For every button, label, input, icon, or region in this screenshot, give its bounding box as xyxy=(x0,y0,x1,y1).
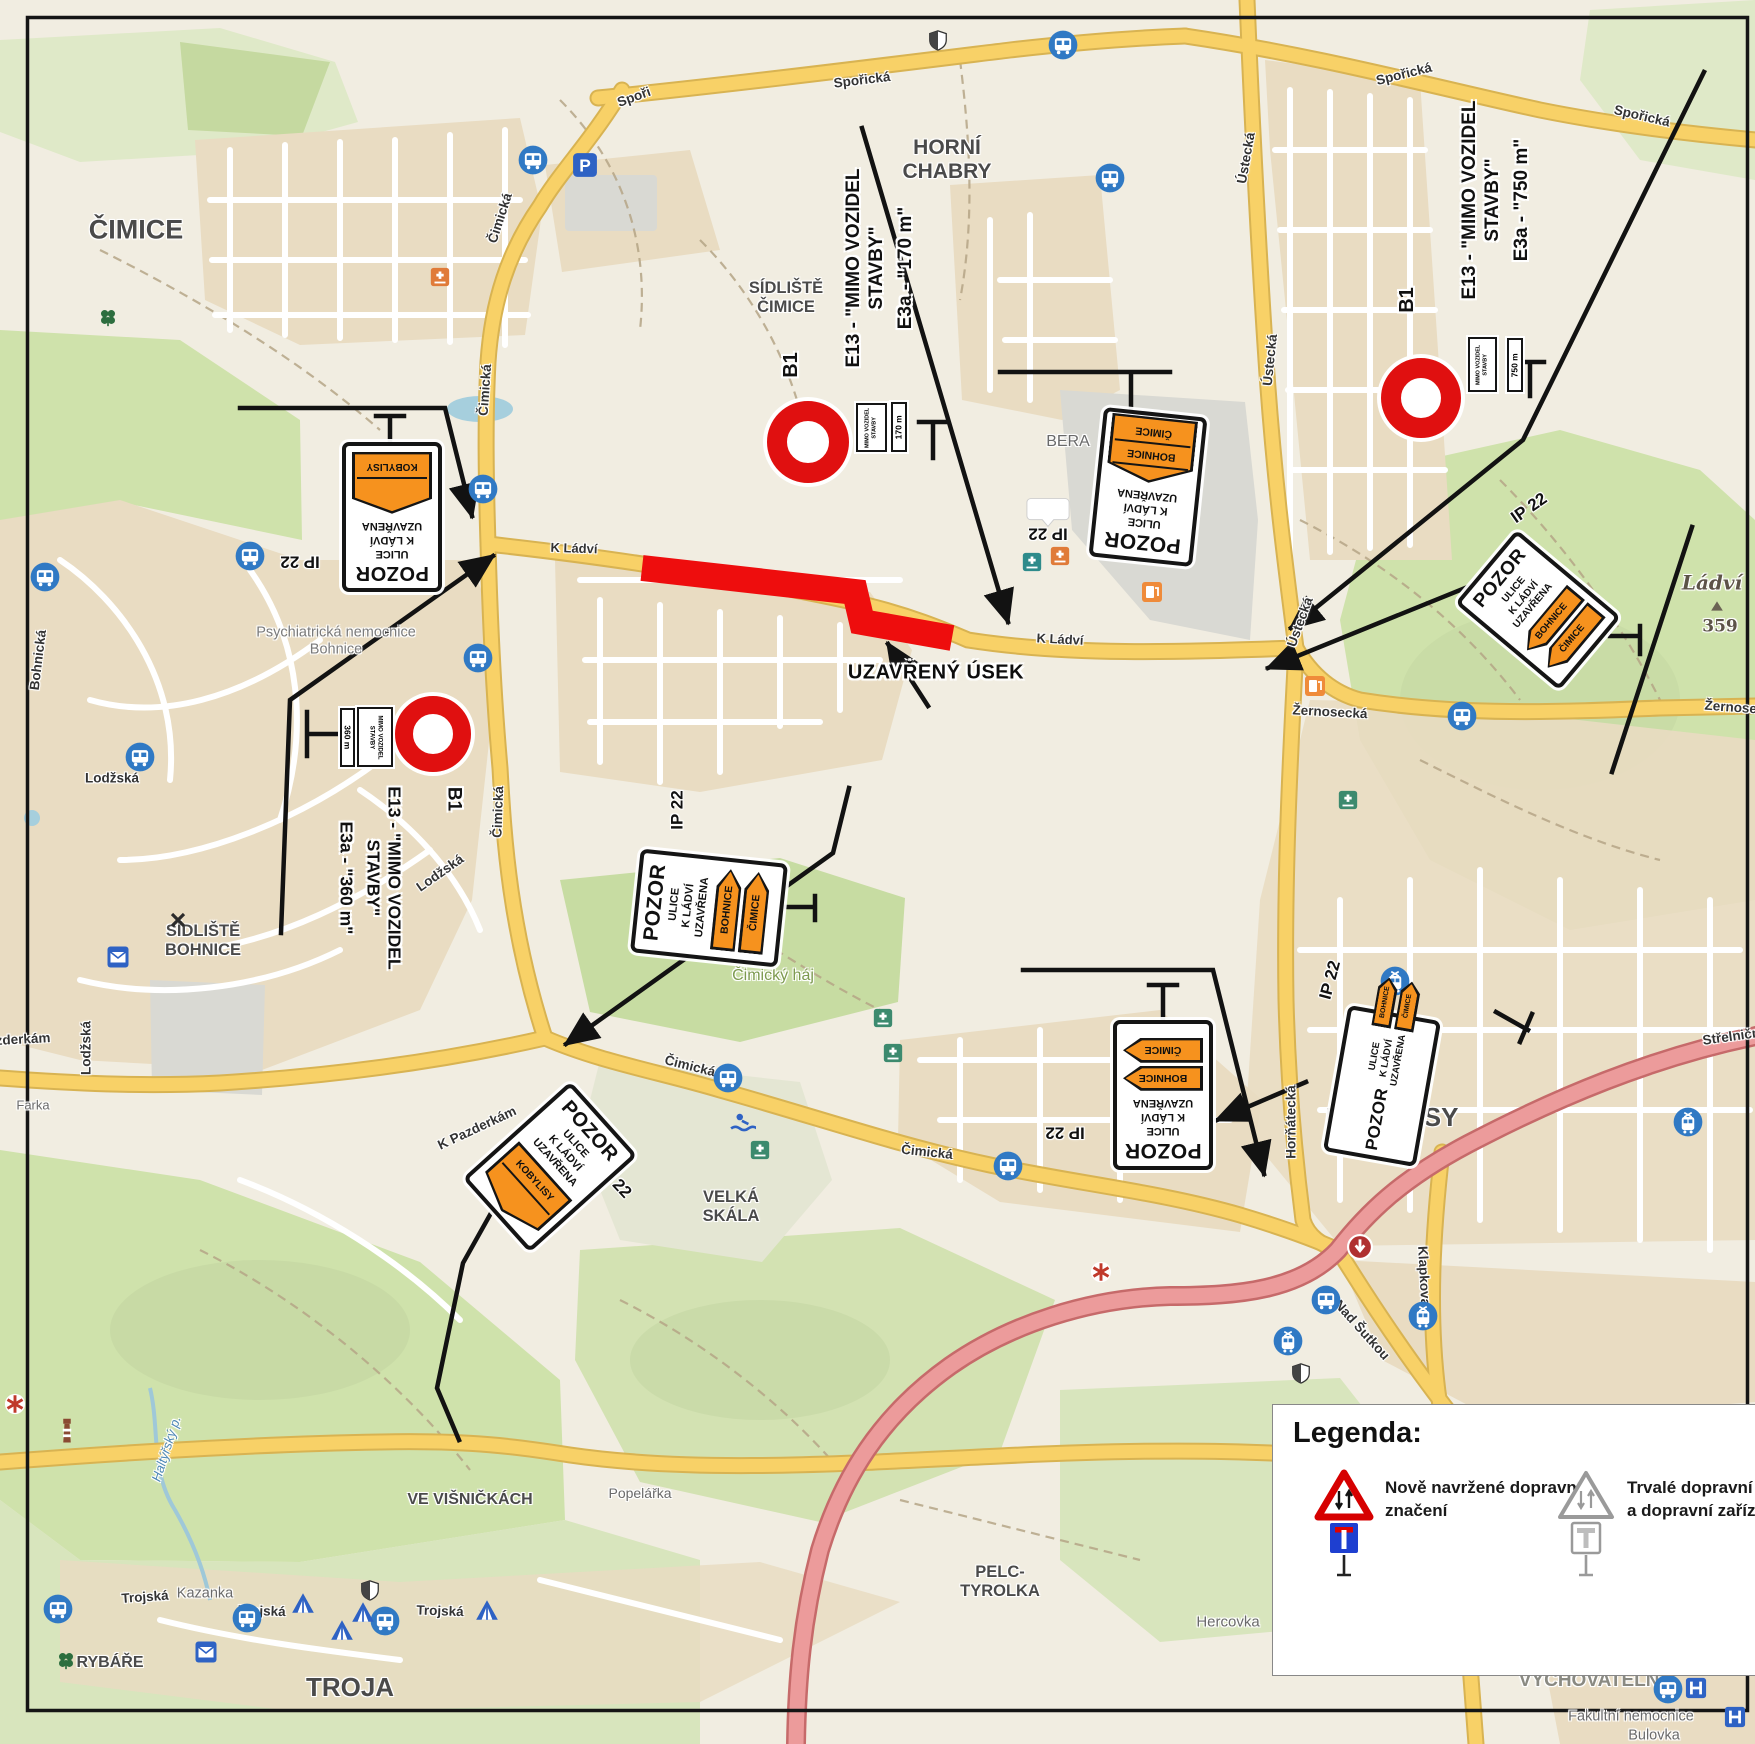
bus-icon xyxy=(126,743,155,772)
asterisk-icon xyxy=(1091,1262,1111,1282)
bus-icon xyxy=(1096,164,1125,193)
sign-title: POZOR xyxy=(355,563,429,583)
direction-plate-cimice: ČIMICE xyxy=(738,871,771,955)
sign-lines: ULICEK LÁDVÍUZAVŘENA xyxy=(362,519,422,560)
bus-icon xyxy=(994,1152,1023,1181)
bus-icon xyxy=(519,146,548,175)
legend-item-new-signage: Nově navržené dopravní značení xyxy=(1313,1467,1582,1583)
e13-plate: MIMO VOZIDEL STAVBY xyxy=(856,403,887,452)
parking-icon xyxy=(573,153,597,177)
e3a-plate: 170 m xyxy=(891,402,907,452)
direction-plate-kobylisy: KOBYLISY xyxy=(352,452,432,514)
e13-plate: MIMO VOZIDEL STAVBY xyxy=(1468,337,1497,392)
pharmacy-icon xyxy=(874,1009,892,1027)
legend-item-label: Nově navržené dopravní značení xyxy=(1385,1467,1582,1583)
legend: Legenda: Nově navržené dopravní značení … xyxy=(1272,1404,1755,1676)
pozor-sign-bera: POZOR ULICEK LÁDVÍUZAVŘENA BOHNICEČIMICE xyxy=(1088,407,1207,567)
bus-icon xyxy=(1312,1286,1341,1315)
bus-icon xyxy=(1654,1675,1683,1704)
sign-lines: ULICEK LÁDVÍUZAVŘENA xyxy=(1133,1096,1193,1137)
lighthouse-icon xyxy=(63,1419,72,1443)
legend-item-label: Trvalé dopravní značení a dopravní zaříz… xyxy=(1627,1467,1755,1583)
e3a-plate: 360 m xyxy=(340,708,355,767)
clinic-orange-icon xyxy=(1051,547,1069,565)
traffic-closure-plan: { "colors":{"map_bg":"#f1ede1","urban":"… xyxy=(0,0,1755,1744)
closed-section-label: UZAVŘENÝ ÚSEK xyxy=(848,662,1024,685)
shield-icon xyxy=(930,31,947,50)
b1-label: B1 xyxy=(442,787,465,811)
direction-plate-cimice: ČIMICE xyxy=(1123,1038,1203,1063)
bus-icon xyxy=(714,1064,743,1093)
gas-icon xyxy=(1142,582,1162,602)
hospital-icon xyxy=(1725,1707,1745,1727)
tent-icon xyxy=(476,1600,498,1620)
roundabout-icon xyxy=(1348,1235,1372,1259)
sign-title: POZOR xyxy=(1362,1087,1390,1152)
envelope-icon xyxy=(196,1642,217,1663)
b1-group-text: E13 - "MIMO VOZIDELSTAVBY"E3a - "750 m" xyxy=(1459,70,1533,330)
sign-title: POZOR xyxy=(1124,1140,1201,1161)
e13-plate: MIMO VOZIDEL STAVBY xyxy=(357,707,393,767)
sign-lines: ULICEK LÁDVÍUZAVŘENA xyxy=(1365,1030,1409,1087)
bus-icon xyxy=(31,563,60,592)
peak-icon xyxy=(1711,601,1723,610)
clinic-orange-icon xyxy=(431,268,449,286)
tram-icon xyxy=(1674,1108,1703,1137)
b1-group-text: E13 - "MIMO VOZIDELSTAVBY"E3a - "170 m" xyxy=(843,133,917,403)
pharmacy-icon xyxy=(884,1044,902,1062)
envelope-icon xyxy=(108,947,129,968)
b1-label: B1 xyxy=(779,352,803,378)
shield-icon xyxy=(1293,1364,1310,1383)
sign-lines: ULICEK LÁDVÍUZAVŘENA xyxy=(1114,485,1178,532)
bus-icon xyxy=(371,1607,400,1636)
legend-title: Legenda: xyxy=(1293,1417,1422,1450)
e3a-plate: 750 m xyxy=(1507,338,1523,392)
b1-no-entry-sign xyxy=(395,696,471,772)
bus-icon xyxy=(1049,31,1078,60)
b1-group-text: E13 - "MIMO VOZIDELSTAVBY"E3a - "360 m" xyxy=(336,768,405,988)
sign-lines: ULICEK LÁDVÍUZAVŘENA xyxy=(665,874,712,938)
pharmacy-icon xyxy=(751,1141,769,1159)
direction-plate-bohnice-cimice: BOHNICEČIMICE xyxy=(1106,413,1198,488)
pozor-sign-cimicka-north: POZOR ULICEK LÁDVÍUZAVŘENA KOBYLISY xyxy=(342,442,442,592)
gas-icon xyxy=(1305,676,1325,696)
new-signage-icon xyxy=(1313,1467,1375,1583)
bus-icon xyxy=(44,1595,73,1624)
clover-icon xyxy=(101,310,115,326)
bus-icon xyxy=(1448,702,1477,731)
direction-plate-bohnice: BOHNICE xyxy=(1123,1066,1203,1091)
b1-no-entry-sign xyxy=(767,401,849,483)
legend-item-permanent-signage: Trvalé dopravní značení a dopravní zaříz… xyxy=(1555,1467,1755,1583)
aaa-bubble-icon xyxy=(1027,499,1069,527)
tent-icon xyxy=(331,1620,353,1640)
permanent-signage-icon xyxy=(1555,1467,1617,1583)
swim-icon xyxy=(731,1114,757,1130)
tent-icon xyxy=(292,1593,314,1613)
tram-icon xyxy=(1409,1302,1438,1331)
b1-label: B1 xyxy=(1395,287,1419,313)
sign-title: POZOR xyxy=(1103,528,1182,557)
bus-icon xyxy=(464,644,493,673)
tent-icon xyxy=(352,1602,374,1622)
pozor-sign-hornatecka: POZOR ULICEK LÁDVÍUZAVŘENA BOHNICE ČIMIC… xyxy=(1113,1020,1213,1170)
shield-icon xyxy=(362,1581,379,1600)
bus-icon xyxy=(236,542,265,571)
b1-no-entry-sign xyxy=(1381,358,1461,438)
clover-icon xyxy=(59,1653,73,1669)
clinic-teal-icon xyxy=(1023,553,1041,571)
hospital-icon xyxy=(1686,1678,1706,1698)
pozor-sign-cimicky-haj: POZOR ULICEK LÁDVÍUZAVŘENA BOHNICE ČIMIC… xyxy=(630,849,788,968)
tram-icon xyxy=(1274,1327,1303,1356)
pharmacy-icon xyxy=(1339,791,1357,809)
bus-icon xyxy=(469,475,498,504)
xmark-icon xyxy=(172,914,184,926)
asterisk-icon xyxy=(5,1394,25,1414)
bus-icon xyxy=(233,1604,262,1633)
